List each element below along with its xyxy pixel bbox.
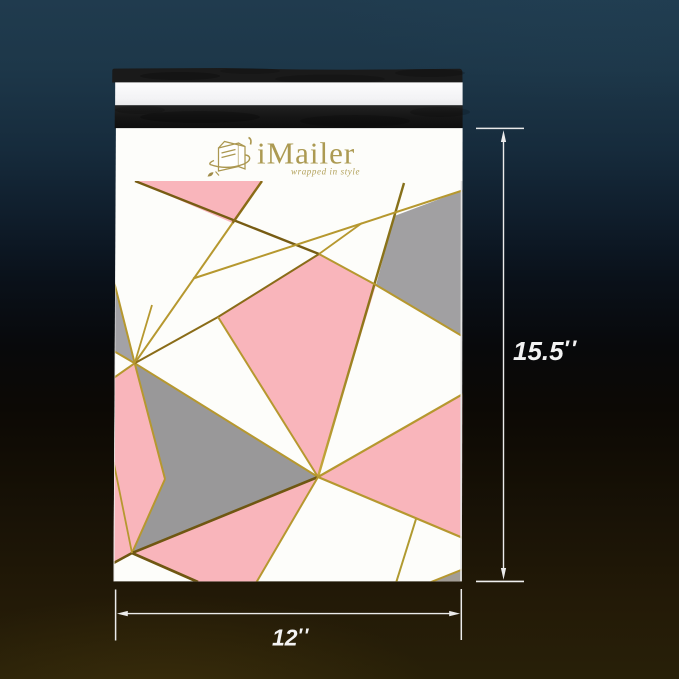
svg-text:iMailer: iMailer: [257, 136, 355, 171]
svg-text:wrapped in style: wrapped in style: [291, 167, 360, 177]
svg-text:15.5′′: 15.5′′: [513, 336, 578, 366]
svg-text:12′′: 12′′: [272, 625, 310, 651]
